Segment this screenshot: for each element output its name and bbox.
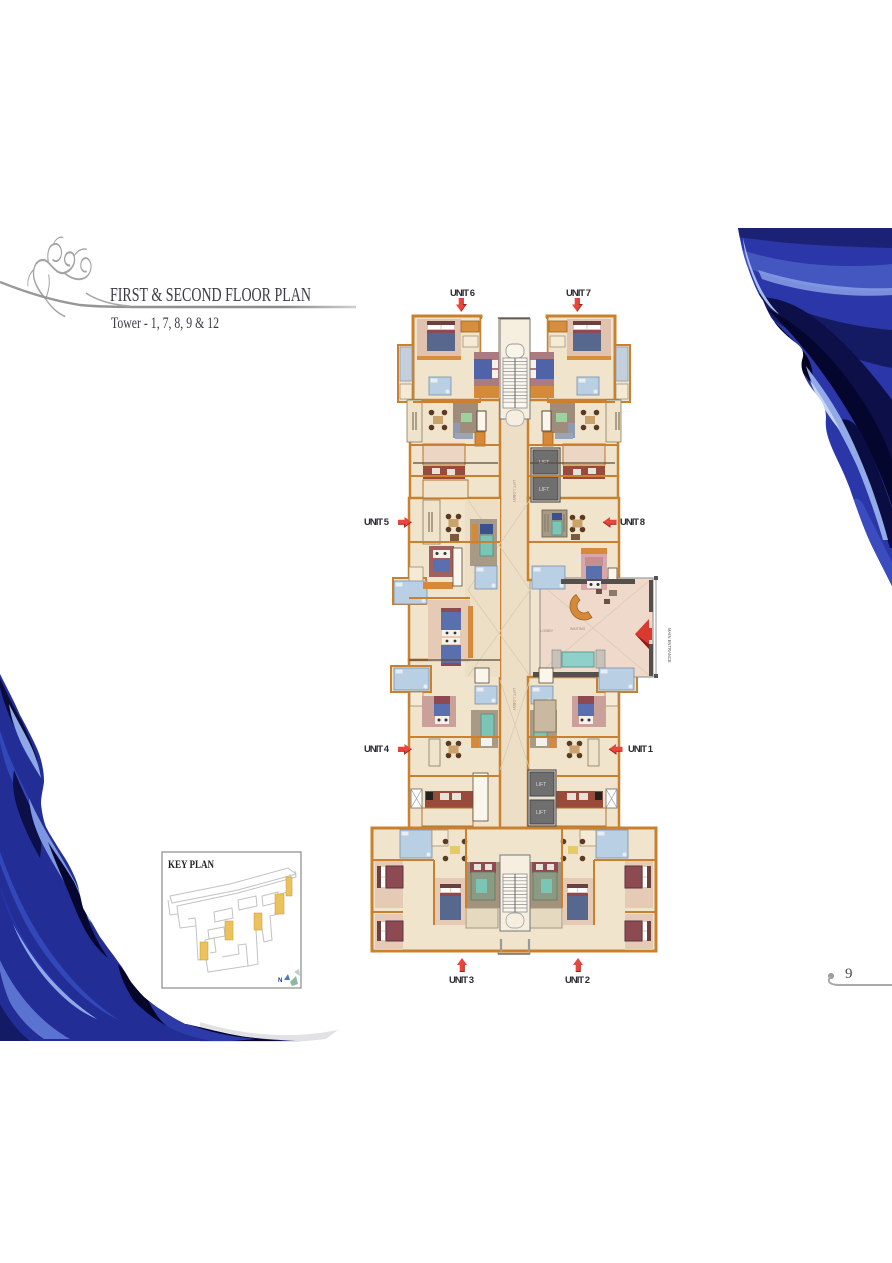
svg-text:UNIT 2: UNIT 2 [565,975,590,986]
svg-text:Tower - 1, 7, 8, 9 & 12: Tower - 1, 7, 8, 9 & 12 [111,315,219,332]
svg-text:MAIN ENTRANCE: MAIN ENTRANCE [667,628,672,663]
svg-text:9: 9 [845,966,853,982]
svg-text:LIFT LOBBY: LIFT LOBBY [512,688,517,711]
svg-text:WAITING: WAITING [570,627,585,631]
svg-text:LOBBY: LOBBY [540,628,554,633]
svg-text:UNIT 1: UNIT 1 [628,744,654,755]
svg-text:LIFT: LIFT [539,487,549,493]
svg-text:KEY PLAN: KEY PLAN [168,857,214,871]
svg-text:UNIT 3: UNIT 3 [449,975,474,986]
svg-text:LIFT: LIFT [536,810,546,816]
svg-text:UNIT 4: UNIT 4 [364,744,390,755]
svg-text:UNIT 6: UNIT 6 [450,288,475,299]
svg-text:LIFT LOBBY: LIFT LOBBY [512,480,517,503]
svg-text:LIFT: LIFT [536,782,546,788]
svg-text:UNIT 7: UNIT 7 [566,288,591,299]
svg-text:UNIT 5: UNIT 5 [364,517,390,528]
svg-text:UNIT 8: UNIT 8 [620,517,645,528]
svg-text:FIRST & SECOND FLOOR PLAN: FIRST & SECOND FLOOR PLAN [110,284,311,306]
svg-text:N: N [278,978,282,984]
